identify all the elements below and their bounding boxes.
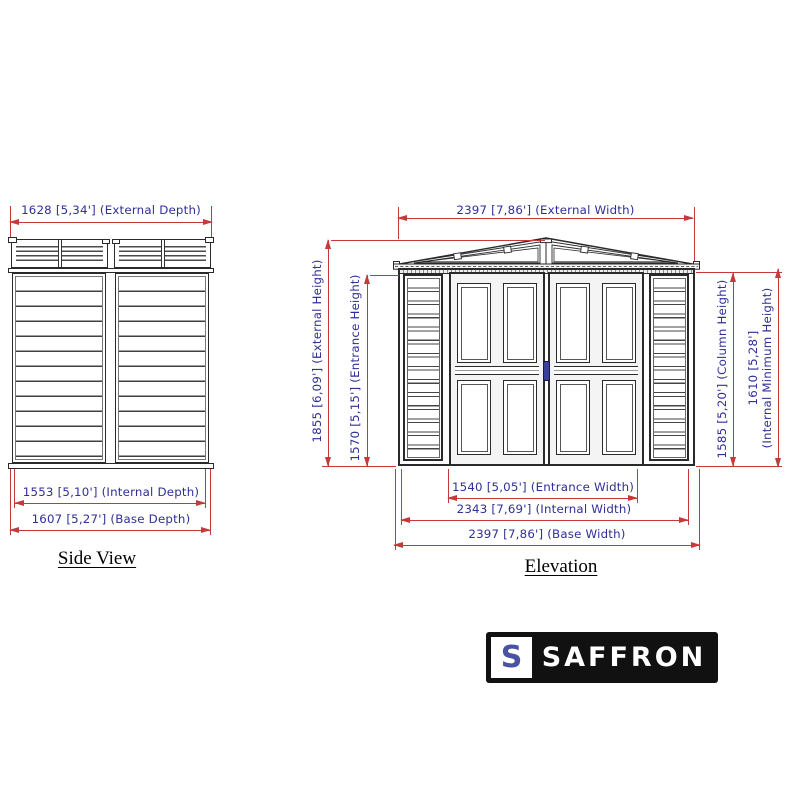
saffron-logo: S SAFFRON xyxy=(486,632,718,683)
wall-siding-bay xyxy=(12,273,106,463)
extension-line xyxy=(370,275,399,276)
door-panel xyxy=(503,283,537,363)
louver-panel-right xyxy=(649,274,689,461)
column-height-label: 1585 [5,20'] (Column Height) xyxy=(715,269,729,469)
side-wall xyxy=(11,273,211,463)
column-height-dimension-line xyxy=(733,273,734,466)
roof-cap xyxy=(102,239,110,244)
side-view-drawing xyxy=(10,237,212,469)
entrance-width-label: 1540 [5,05'] (Entrance Width) xyxy=(398,480,688,494)
door-panel xyxy=(556,380,590,455)
door-panel xyxy=(457,283,491,363)
internal-min-height-value: 1610 [5,28'] xyxy=(746,268,760,468)
base-depth-dimension-line xyxy=(10,530,210,531)
wall-siding-bay xyxy=(115,273,209,463)
extension-line xyxy=(699,469,700,550)
external-width-dimension-line xyxy=(398,218,693,219)
door-mid-rail xyxy=(455,366,539,375)
base-width-label: 2397 [7,86'] (Base Width) xyxy=(402,527,692,541)
extension-line xyxy=(395,469,396,550)
logo-wordmark: SAFFRON xyxy=(536,642,712,673)
extension-line xyxy=(205,469,206,508)
internal-min-height-dimension-line xyxy=(778,269,779,467)
external-height-dimension-line xyxy=(328,240,329,466)
arrowhead-left-icon xyxy=(9,527,19,533)
door-panel-inset xyxy=(606,287,633,360)
door-panel xyxy=(602,380,636,455)
gable-louver-bay xyxy=(114,239,211,268)
base-plate xyxy=(8,463,214,469)
internal-min-height-caption: (Internal Minimum Height) xyxy=(760,268,774,468)
roof-cap xyxy=(8,237,17,243)
gable-louver-bay xyxy=(11,239,108,268)
door-panel-inset xyxy=(560,287,587,360)
door-panel xyxy=(503,380,537,455)
roof-cap xyxy=(112,239,120,244)
roof-cap xyxy=(205,237,214,243)
logo-monogram: S xyxy=(501,643,523,673)
arrowhead-up-icon xyxy=(325,239,331,249)
logo-monogram-box: S xyxy=(491,637,532,678)
arrowhead-up-icon xyxy=(775,268,781,278)
extension-line xyxy=(331,240,545,241)
extension-line xyxy=(10,469,11,535)
door-panel-inset xyxy=(507,287,534,360)
elevation-title: Elevation xyxy=(501,556,621,578)
entrance-height-dimension-line xyxy=(367,275,368,466)
door-panel-inset xyxy=(507,384,534,452)
door-panel-inset xyxy=(461,287,488,360)
external-depth-dimension-line xyxy=(10,222,212,223)
extension-line xyxy=(637,469,638,503)
door-panel xyxy=(457,380,491,455)
door-panel xyxy=(556,283,590,363)
side-view-title: Side View xyxy=(34,548,160,570)
extension-line xyxy=(211,206,212,239)
door-panel xyxy=(602,283,636,363)
louver-panel-left xyxy=(403,274,443,461)
arrowhead-down-icon xyxy=(364,457,370,467)
arrowhead-right-icon xyxy=(684,215,694,221)
base-depth-label: 1607 [5,27'] (Base Depth) xyxy=(10,512,212,526)
extension-line xyxy=(14,469,15,508)
external-depth-label: 1628 [5,34'] (External Depth) xyxy=(10,203,212,217)
siding-lines xyxy=(118,276,206,460)
siding-lines xyxy=(15,276,103,460)
door-panel-inset xyxy=(560,384,587,452)
door-mid-rail xyxy=(554,366,638,375)
louver-slats xyxy=(407,278,440,458)
door-panel-inset xyxy=(606,384,633,452)
extension-line xyxy=(398,207,399,239)
extension-line xyxy=(448,469,449,503)
door-panel-inset xyxy=(461,384,488,452)
extension-line xyxy=(688,469,689,525)
internal-depth-dimension-line xyxy=(15,503,205,504)
external-width-label: 2397 [7,86'] (External Width) xyxy=(398,203,693,217)
internal-width-label: 2343 [7,69'] (Internal Width) xyxy=(399,502,689,516)
extension-line xyxy=(401,469,402,525)
external-height-label: 1855 [6,09'] (External Height) xyxy=(310,251,324,451)
entrance-width-dimension-line xyxy=(448,498,637,499)
mullion xyxy=(58,240,62,267)
gable-roof xyxy=(393,237,700,271)
mullion xyxy=(161,240,165,267)
base-width-dimension-line xyxy=(394,545,700,546)
internal-depth-label: 1553 [5,10'] (Internal Depth) xyxy=(10,485,212,499)
arrowhead-up-icon xyxy=(730,272,736,282)
entrance-height-label: 1570 [5,15'] (Entrance Height) xyxy=(348,268,362,468)
side-gable-louvers xyxy=(10,239,212,268)
elevation-drawing xyxy=(393,237,700,469)
louver-slats xyxy=(653,278,686,458)
door-left xyxy=(449,272,545,466)
door-handle xyxy=(543,361,550,381)
internal-min-height-label: 1610 [5,28'] (Internal Minimum Height) xyxy=(746,268,774,468)
extension-line xyxy=(10,206,11,239)
arrowhead-up-icon xyxy=(364,274,370,284)
internal-width-dimension-line xyxy=(401,520,688,521)
arrowhead-left-icon xyxy=(14,500,24,506)
door-right xyxy=(548,272,644,466)
extension-line xyxy=(210,469,211,535)
